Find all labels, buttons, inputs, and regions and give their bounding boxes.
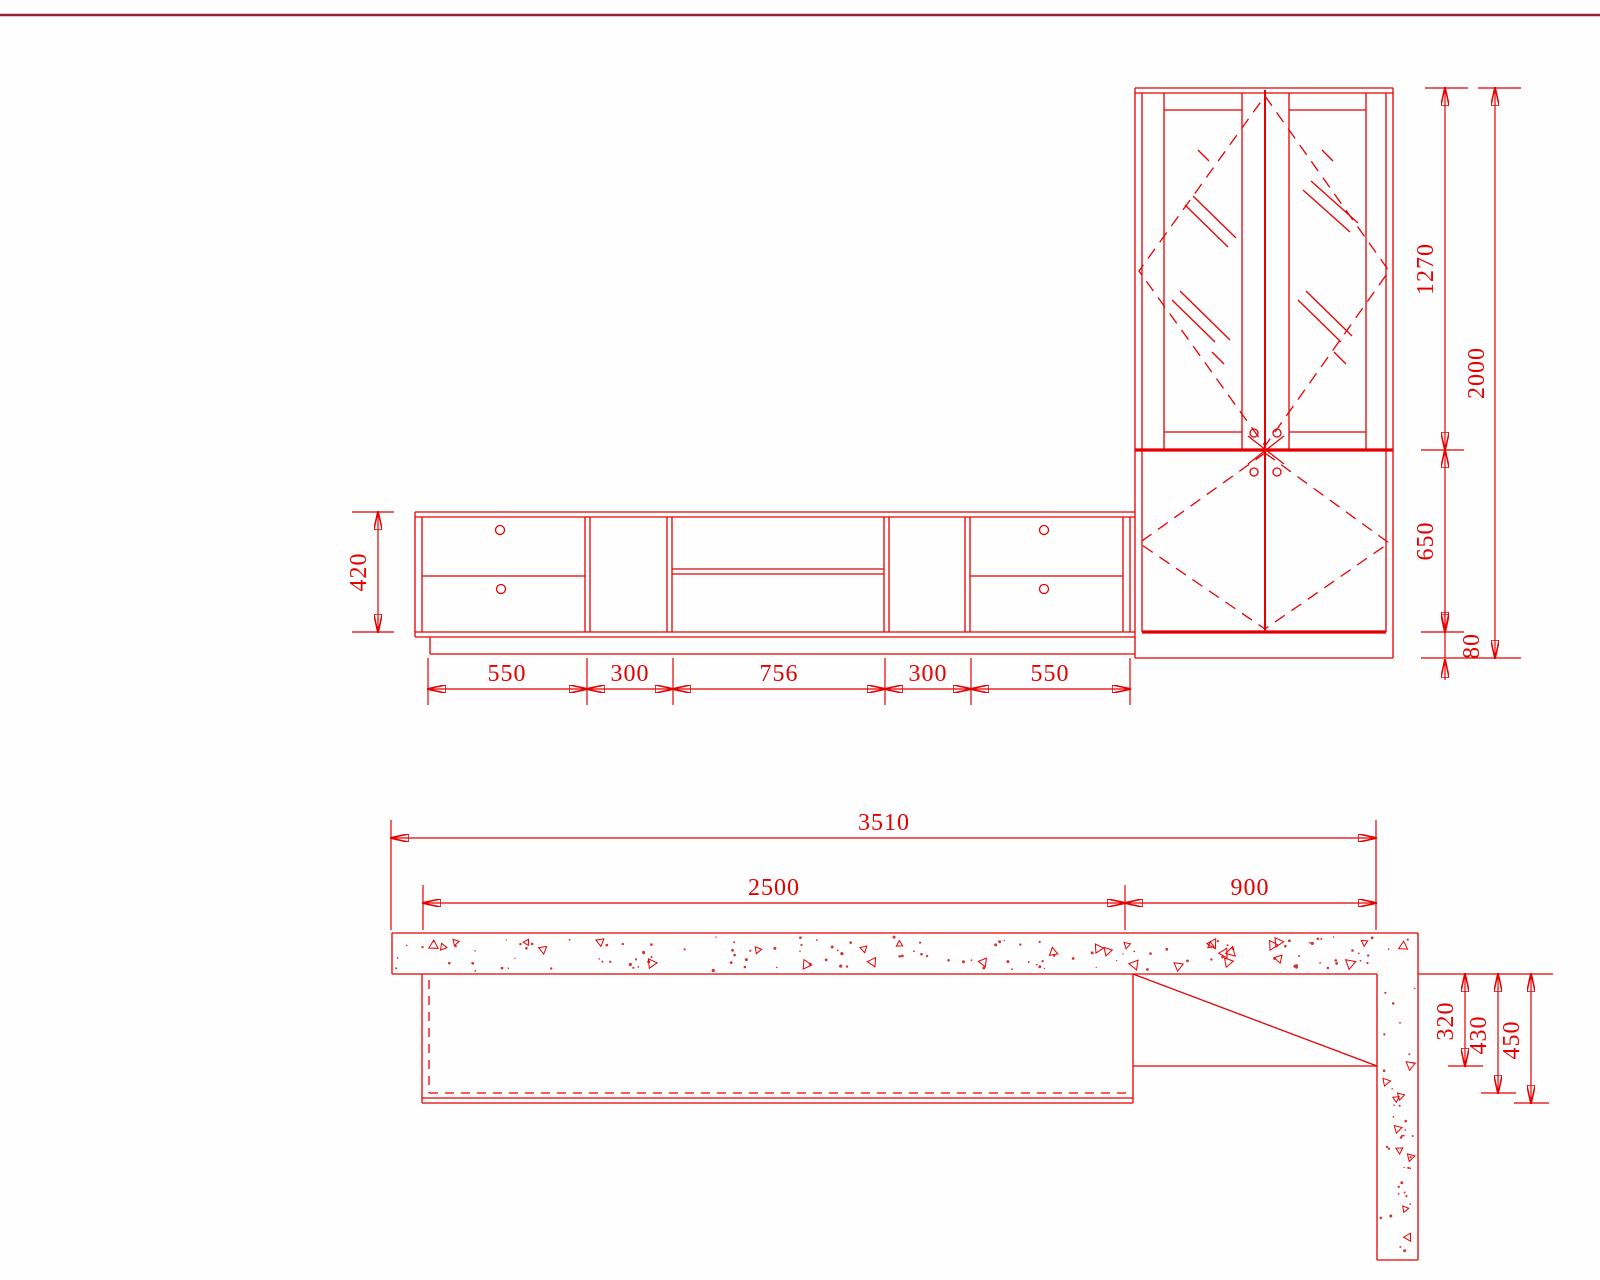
dim-body-height: 420 [346,553,372,592]
cad-sheet: 420 550 300 756 300 550 [0,0,1600,1280]
tv-cabinet-elevation [415,512,1135,654]
lower-doors [1139,436,1389,632]
dim-plinth-height: 80 [1459,633,1485,659]
diagonal-brace [1133,974,1377,1066]
door-handle-icon [1273,468,1281,476]
tall-cabinet-plan [1133,974,1377,1066]
dim-total-width: 3510 [858,810,910,836]
wall-hatch-right [1380,988,1416,1253]
dim-section-4: 300 [909,661,948,687]
door-handle-icon [1273,429,1281,437]
walls [392,933,1418,1260]
tv-cabinet-plan [422,974,1133,1103]
cad-drawing: 420 550 300 756 300 550 [0,0,1600,1280]
dim-cabinet-depth: 320 [1433,1002,1459,1041]
dim-tv-depth: 450 [1499,1021,1525,1060]
glass-doors [1139,90,1389,450]
plan-dimensions-top: 3510 2500 900 [391,810,1376,930]
elevation-dimensions: 420 550 300 756 300 550 [346,88,1521,705]
dim-total-height: 2000 [1464,347,1490,399]
wall-hatch-top [395,936,1409,973]
dim-tv-unit-width: 2500 [748,875,800,901]
dim-section-3: 756 [760,661,799,687]
knob-icon [496,526,505,535]
knob-icon [1040,585,1049,594]
dim-glass-door-height: 1270 [1413,243,1439,295]
plan-dimensions-right: 320 430 450 [1418,974,1553,1103]
dim-tv-depth-inner: 430 [1466,1016,1492,1055]
tall-cabinet-elevation [1135,88,1393,658]
dim-section-5: 550 [1031,661,1070,687]
plan-view: 3510 2500 900 320 430 450 [391,810,1553,1260]
elevation-view: 420 550 300 756 300 550 [346,88,1521,705]
knob-icon [1040,526,1049,535]
door-handle-icon [1250,468,1258,476]
dim-lower-door-height: 650 [1413,522,1439,561]
dim-section-1: 550 [488,661,527,687]
dim-section-2: 300 [611,661,650,687]
dim-cabinet-width: 900 [1231,875,1270,901]
knob-icon [497,585,506,594]
